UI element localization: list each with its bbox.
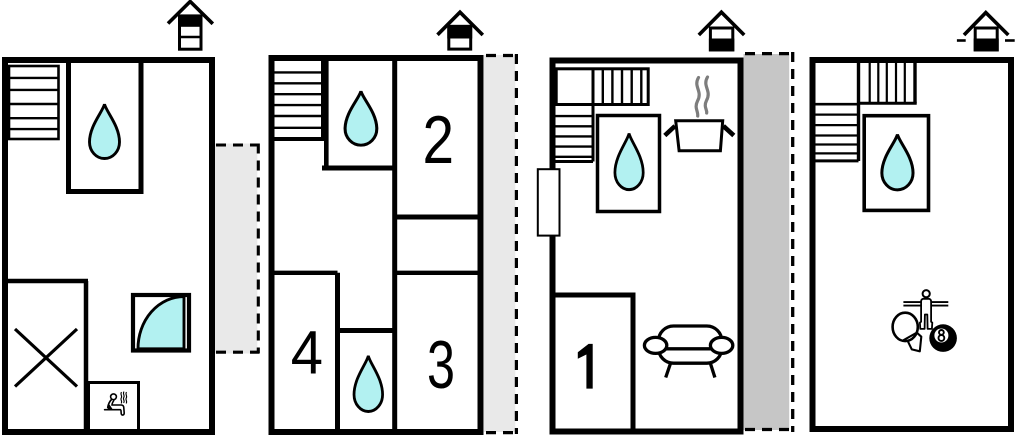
svg-text:2: 2 — [422, 103, 454, 178]
svg-text:3: 3 — [427, 327, 455, 403]
svg-text:4: 4 — [291, 318, 323, 387]
